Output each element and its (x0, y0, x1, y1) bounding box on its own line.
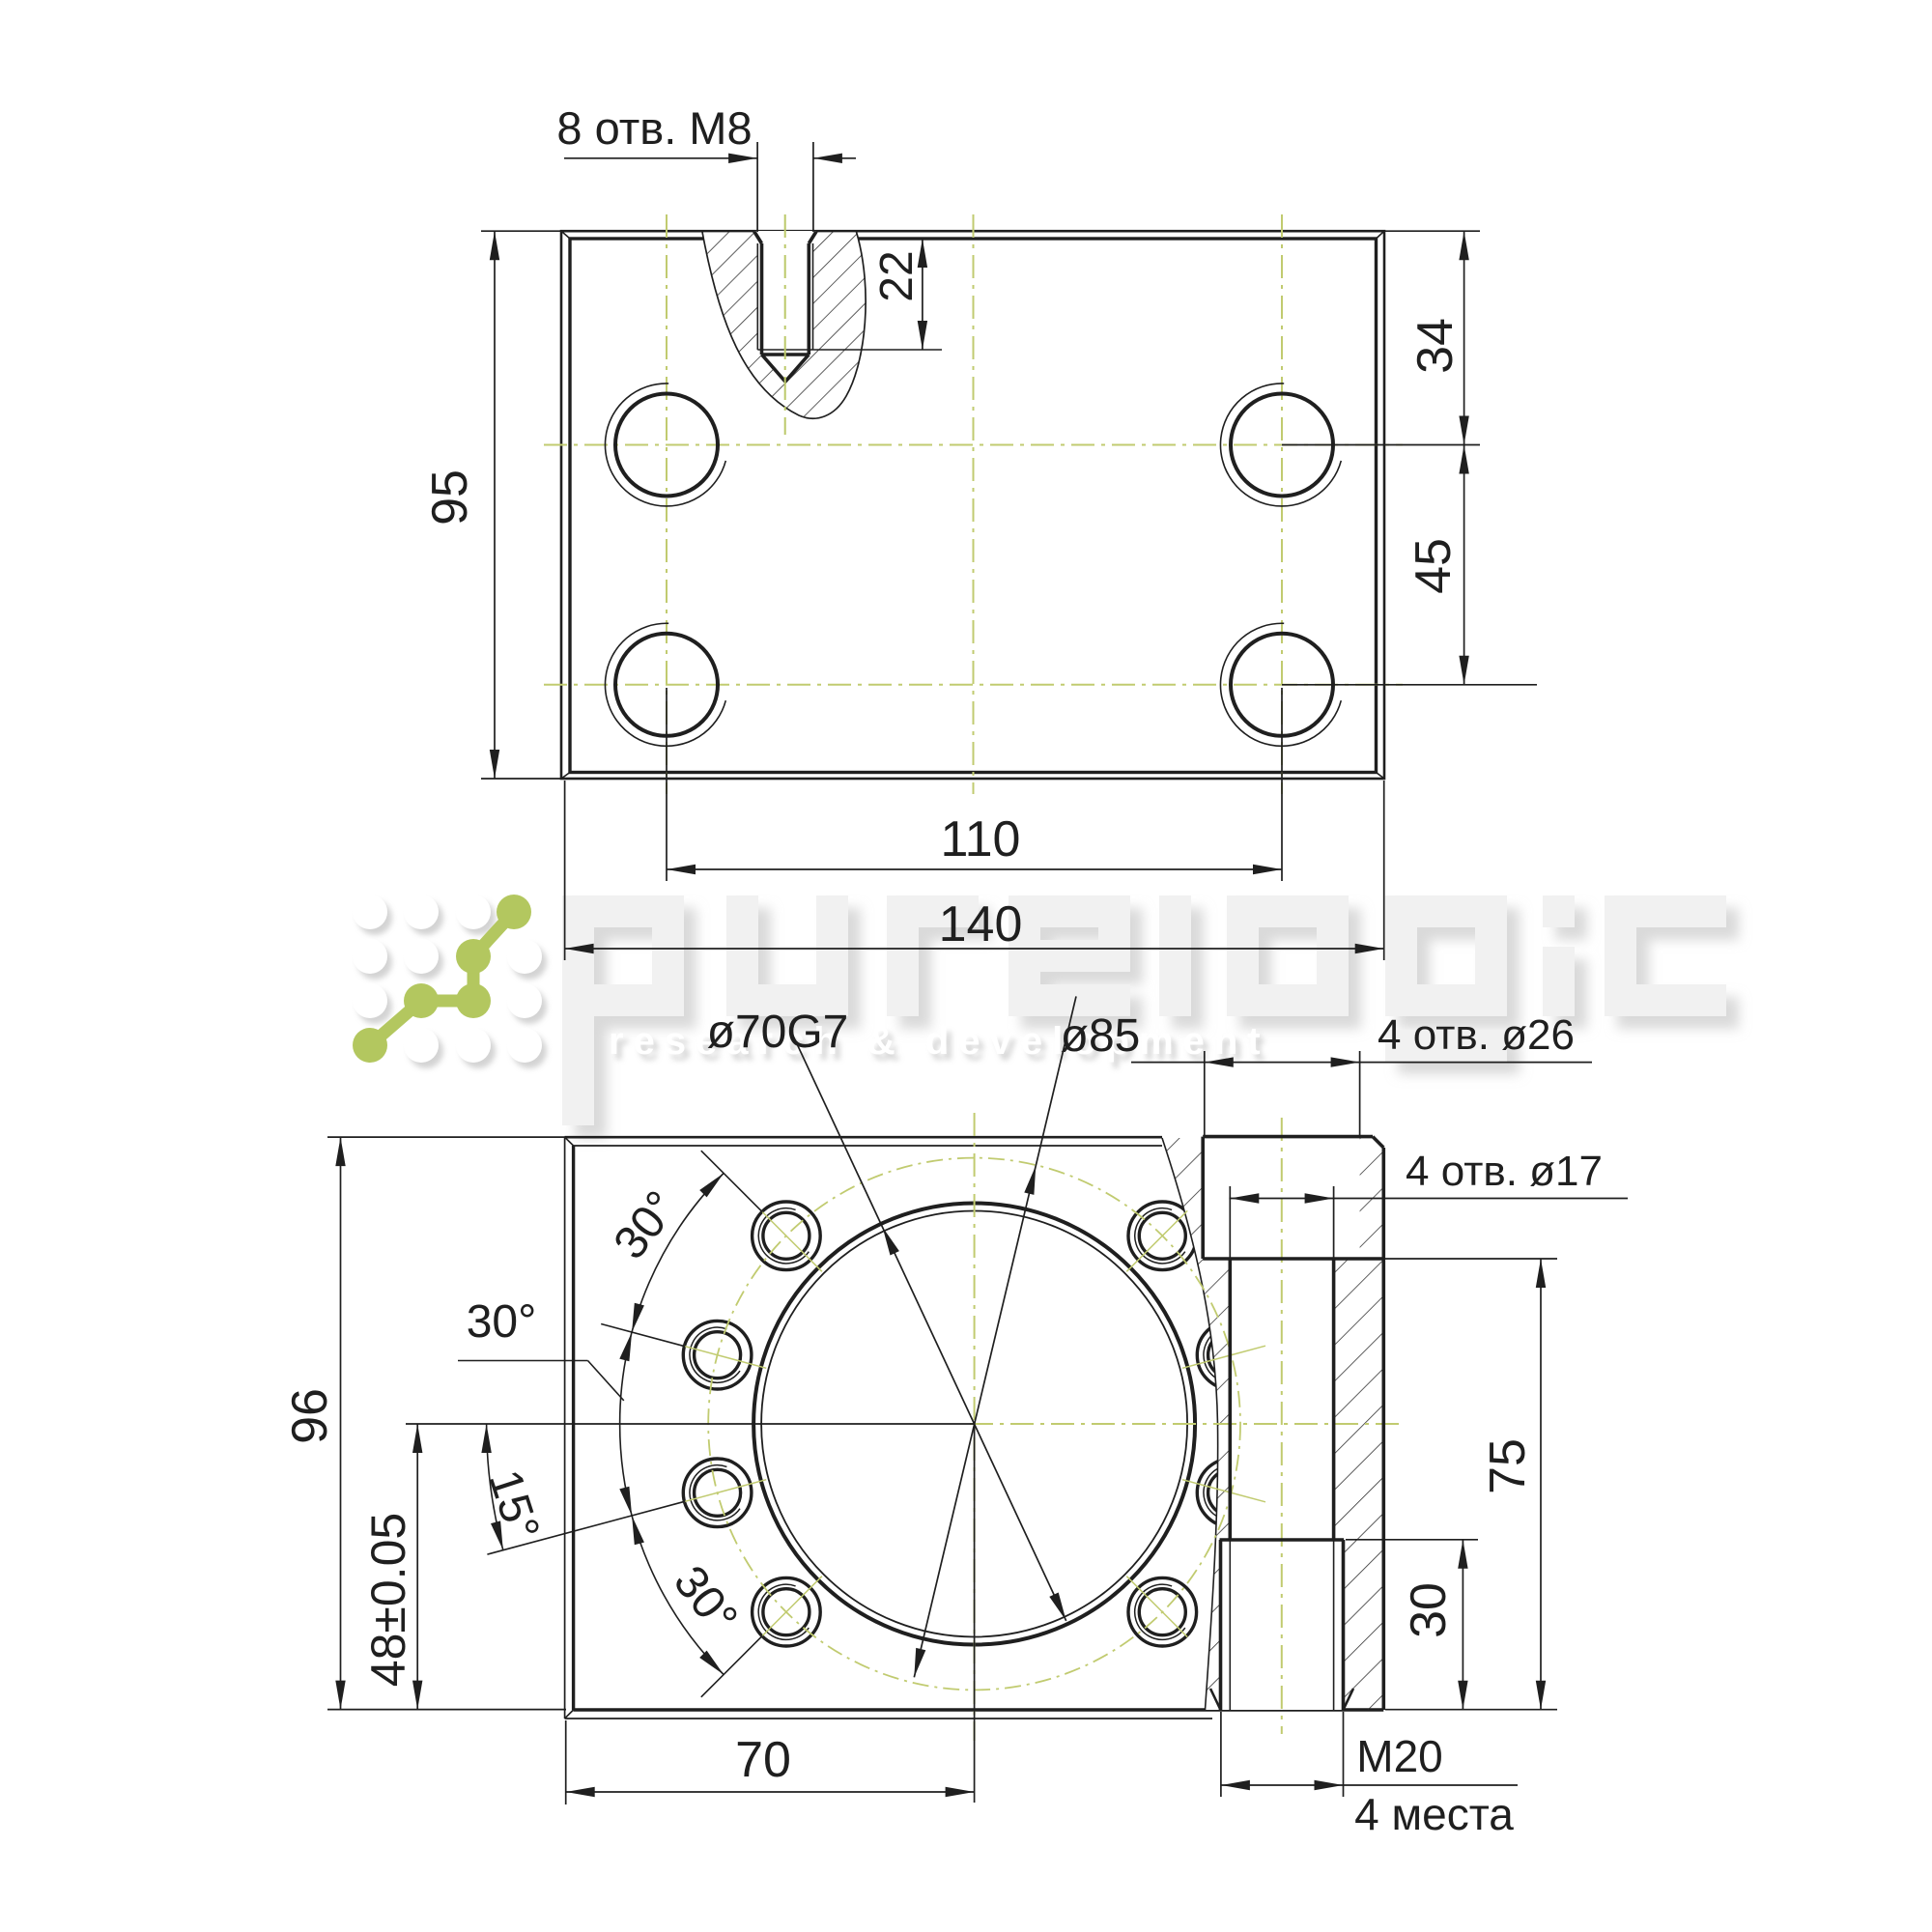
svg-text:45: 45 (1406, 538, 1462, 594)
svg-text:ø70G7: ø70G7 (707, 1007, 849, 1058)
svg-text:48±0.05: 48±0.05 (361, 1513, 415, 1687)
svg-text:70: 70 (735, 1732, 791, 1788)
svg-text:ø85: ø85 (1061, 1010, 1141, 1062)
svg-text:30: 30 (1401, 1582, 1457, 1638)
svg-text:75: 75 (1480, 1438, 1536, 1494)
svg-text:96: 96 (282, 1388, 338, 1444)
svg-text:140: 140 (939, 896, 1023, 952)
svg-text:30°: 30° (467, 1296, 537, 1348)
svg-text:4 места: 4 места (1354, 1789, 1514, 1839)
svg-text:4 отв. ø17: 4 отв. ø17 (1406, 1148, 1603, 1195)
svg-text:22: 22 (871, 250, 923, 301)
svg-text:95: 95 (422, 469, 478, 526)
svg-text:34: 34 (1407, 318, 1463, 374)
svg-text:110: 110 (941, 811, 1021, 867)
svg-text:М20: М20 (1356, 1731, 1442, 1781)
svg-text:4 отв. ø26: 4 отв. ø26 (1378, 1011, 1575, 1059)
svg-text:8 отв. М8: 8 отв. М8 (556, 102, 752, 154)
